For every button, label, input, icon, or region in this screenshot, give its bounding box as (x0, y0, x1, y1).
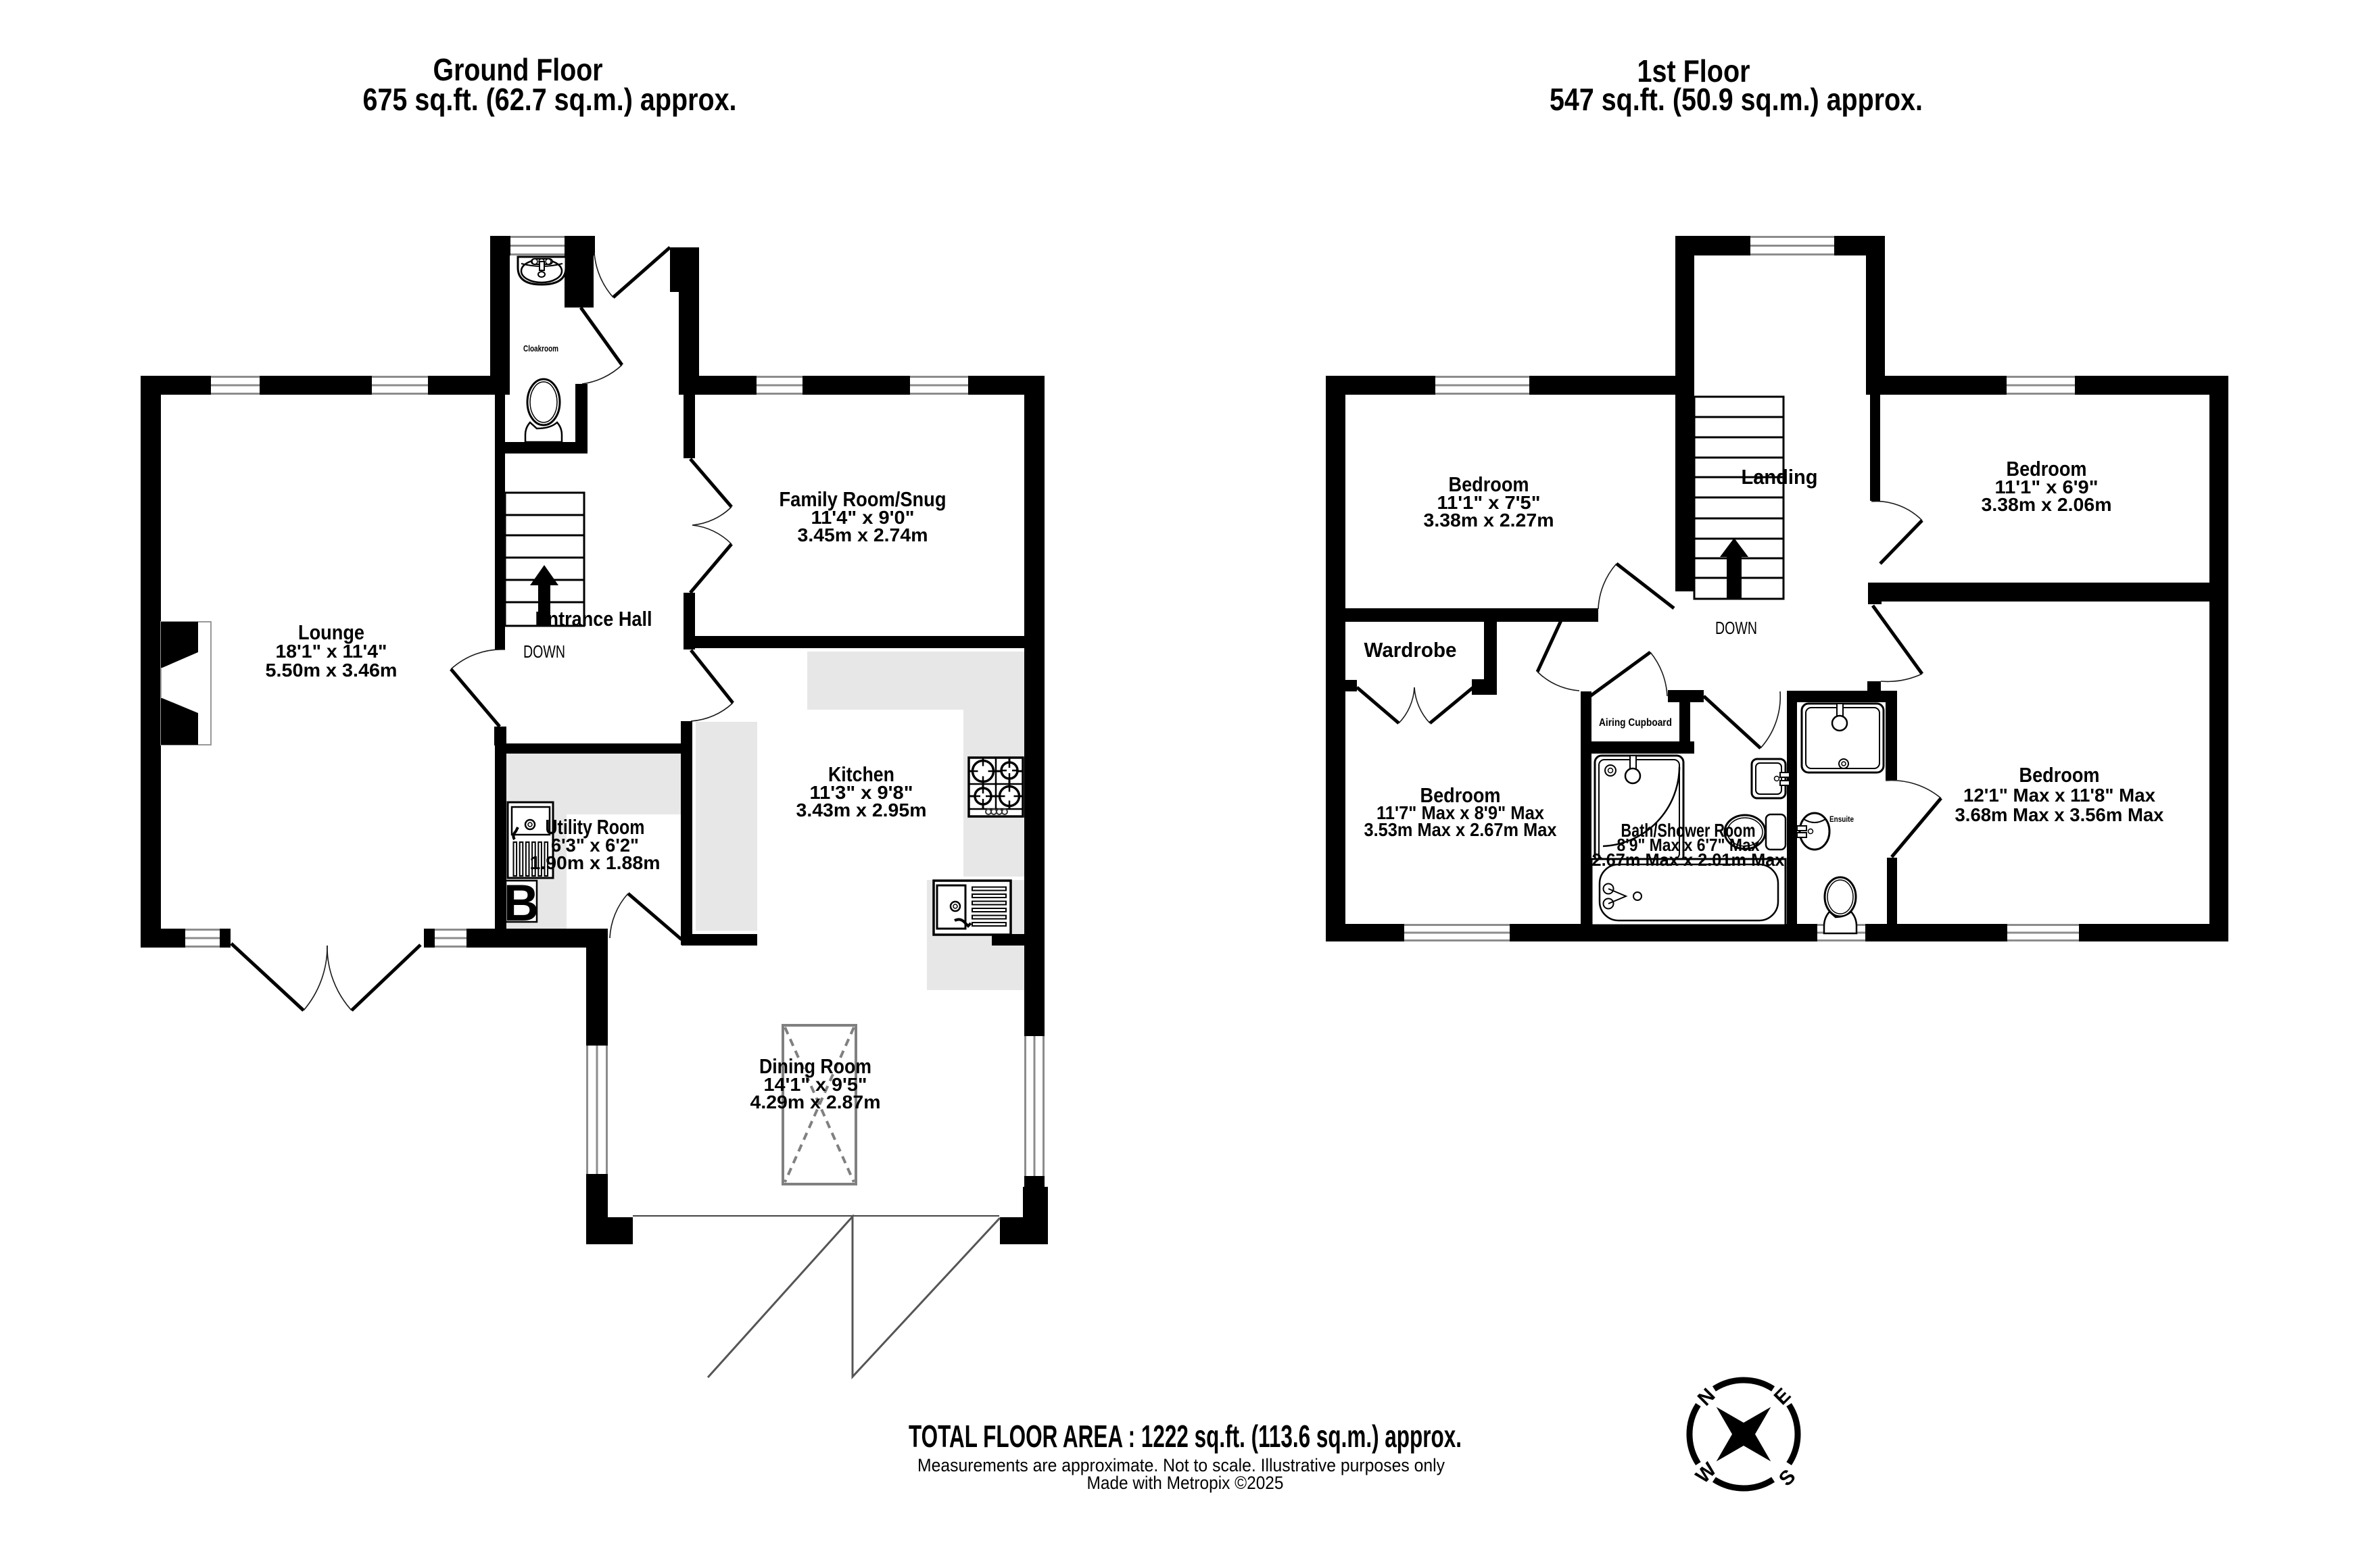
svg-text:3.45m x 2.74m: 3.45m x 2.74m (798, 524, 928, 545)
svg-text:Ensuite: Ensuite (1829, 814, 1854, 824)
svg-text:Cloakroom: Cloakroom (523, 343, 558, 353)
svg-text:Airing Cupboard: Airing Cupboard (1599, 717, 1672, 729)
svg-text:TOTAL FLOOR AREA : 1222 sq.ft.: TOTAL FLOOR AREA : 1222 sq.ft. (113.6 sq… (909, 1419, 1462, 1454)
svg-text:4.29m x 2.87m: 4.29m x 2.87m (750, 1092, 881, 1112)
svg-text:Bedroom: Bedroom (2019, 763, 2100, 787)
svg-text:5.50m x 3.46m: 5.50m x 3.46m (266, 660, 398, 681)
svg-text:Wardrobe: Wardrobe (1364, 638, 1457, 662)
svg-text:3.43m x 2.95m: 3.43m x 2.95m (796, 800, 927, 820)
svg-text:Made with Metropix ©2025: Made with Metropix ©2025 (1087, 1473, 1284, 1493)
svg-text:3.38m x 2.27m: 3.38m x 2.27m (1424, 510, 1554, 531)
svg-text:DOWN: DOWN (523, 641, 565, 662)
svg-text:1.90m x 1.88m: 1.90m x 1.88m (530, 852, 661, 873)
svg-text:3.53m Max x 2.67m Max: 3.53m Max x 2.67m Max (1364, 819, 1557, 840)
svg-text:Entrance Hall: Entrance Hall (535, 607, 652, 631)
svg-text:2.67m Max x 2.01m Max: 2.67m Max x 2.01m Max (1592, 850, 1786, 870)
svg-text:18'1" x 11'4": 18'1" x 11'4" (276, 641, 387, 662)
svg-text:3.38m x 2.06m: 3.38m x 2.06m (1982, 494, 2112, 515)
svg-text:675 sq.ft. (62.7 sq.m.) approx: 675 sq.ft. (62.7 sq.m.) approx. (363, 82, 737, 117)
svg-text:547 sq.ft. (50.9 sq.m.) approx: 547 sq.ft. (50.9 sq.m.) approx. (1550, 82, 1923, 117)
svg-text:DOWN: DOWN (1715, 618, 1757, 638)
svg-text:12'1" Max x 11'8" Max: 12'1" Max x 11'8" Max (1963, 785, 2155, 806)
svg-text:B: B (504, 875, 539, 932)
svg-text:3.68m Max x 3.56m Max: 3.68m Max x 3.56m Max (1955, 804, 2164, 825)
